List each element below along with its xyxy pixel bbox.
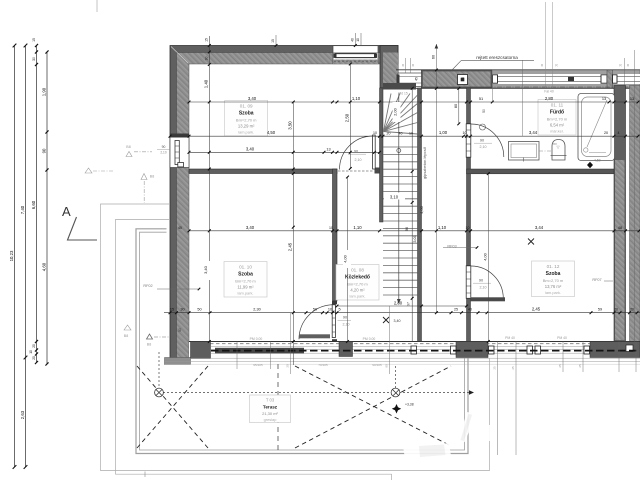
svg-text:01. 12: 01. 12: [547, 264, 560, 269]
svg-text:90: 90: [480, 139, 484, 143]
svg-text:gipszbeton lépcső: gipszbeton lépcső: [422, 146, 427, 179]
svg-text:2,63: 2,63: [20, 410, 25, 419]
svg-text:Pld 15: Pld 15: [398, 92, 408, 96]
svg-text:2,10: 2,10: [343, 322, 350, 326]
svg-text:Közlekedő: Közlekedő: [345, 275, 370, 281]
svg-text:2,80: 2,80: [394, 301, 403, 306]
svg-text:B8: B8: [553, 142, 557, 146]
svg-text:1,10: 1,10: [353, 225, 362, 230]
svg-text:2,10: 2,10: [160, 151, 166, 155]
svg-text:3,40: 3,40: [246, 147, 255, 152]
svg-text:lam.park.: lam.park.: [238, 291, 254, 296]
svg-text:10: 10: [328, 308, 332, 312]
svg-text:3,40: 3,40: [246, 225, 255, 230]
svg-text:13,29 m²: 13,29 m²: [238, 124, 255, 129]
svg-text:01. 08: 01. 08: [351, 268, 364, 273]
svg-text:25: 25: [558, 364, 562, 368]
svg-text:10: 10: [463, 131, 467, 135]
svg-text:Bm=2,70 m: Bm=2,70 m: [236, 117, 257, 122]
svg-text:90: 90: [405, 227, 409, 231]
svg-text:10: 10: [29, 350, 33, 354]
svg-text:4,20 m²: 4,20 m²: [350, 288, 365, 293]
svg-text:20: 20: [32, 356, 36, 360]
svg-text:40: 40: [399, 131, 403, 135]
svg-text:B8: B8: [147, 343, 151, 347]
svg-text:4: 4: [618, 131, 620, 135]
svg-text:13: 13: [326, 148, 330, 152]
svg-text:7,40: 7,40: [20, 205, 25, 214]
svg-text:6,60: 6,60: [31, 200, 36, 209]
svg-text:25: 25: [511, 366, 515, 370]
svg-text:már.ker.: már.ker.: [550, 129, 564, 134]
svg-text:3,44: 3,44: [529, 130, 538, 135]
svg-text:4,60: 4,60: [42, 262, 47, 271]
svg-text:2,10: 2,10: [480, 285, 487, 289]
svg-text:1,10: 1,10: [438, 225, 447, 230]
svg-text:10,23: 10,23: [9, 250, 14, 261]
svg-text:greslap: greslap: [264, 417, 277, 422]
svg-text:lam.park.: lam.park.: [545, 290, 561, 295]
svg-text:3,03: 3,03: [413, 236, 417, 243]
svg-text:01. 10: 01. 10: [239, 265, 252, 270]
svg-text:2,45: 2,45: [288, 242, 293, 251]
svg-text:4,00: 4,00: [343, 254, 348, 262]
svg-text:01. 09: 01. 09: [240, 104, 253, 109]
svg-text:40: 40: [351, 38, 355, 42]
svg-text:+3,38: +3,38: [405, 402, 414, 406]
svg-text:Bm=2,70 m: Bm=2,70 m: [235, 278, 256, 283]
svg-text:59: 59: [598, 308, 602, 312]
svg-text:1,90: 1,90: [42, 87, 47, 96]
svg-text:90: 90: [354, 150, 358, 154]
svg-text:2,10: 2,10: [480, 145, 487, 149]
svg-text:6,54 m²: 6,54 m²: [550, 123, 565, 128]
svg-text:2,00: 2,00: [394, 108, 398, 115]
svg-text:1,00: 1,00: [439, 130, 448, 135]
svg-text:45: 45: [415, 77, 419, 81]
svg-text:4,50: 4,50: [594, 158, 601, 162]
svg-text:90: 90: [384, 364, 388, 368]
svg-text:20: 20: [630, 308, 634, 312]
svg-text:25: 25: [493, 366, 497, 370]
svg-text:30: 30: [32, 57, 36, 61]
svg-text:60: 60: [431, 55, 435, 59]
svg-text:PM 40: PM 40: [557, 336, 567, 340]
svg-text:2,30: 2,30: [253, 308, 260, 312]
svg-text:Terasz: Terasz: [263, 405, 278, 410]
svg-text:50: 50: [178, 328, 182, 332]
svg-text:4,50: 4,50: [267, 130, 276, 135]
svg-text:A: A: [62, 204, 71, 219]
svg-text:21,30 m²: 21,30 m²: [262, 411, 278, 416]
svg-text:01. 11: 01. 11: [551, 103, 564, 108]
svg-text:PM 40: PM 40: [505, 336, 515, 340]
svg-text:RF03: RF03: [447, 245, 456, 249]
svg-text:48: 48: [618, 226, 622, 230]
svg-text:13: 13: [602, 96, 606, 101]
svg-text:RF07: RF07: [592, 278, 601, 282]
svg-text:PM 0.00: PM 0.00: [250, 337, 263, 341]
svg-text:25: 25: [578, 364, 582, 368]
svg-text:Fal 40: Fal 40: [544, 90, 554, 94]
svg-text:Bm=2,70 m: Bm=2,70 m: [347, 281, 368, 286]
svg-text:90: 90: [343, 316, 347, 320]
svg-text:30: 30: [180, 308, 184, 312]
svg-text:20: 20: [32, 344, 36, 348]
svg-text:B8: B8: [150, 175, 154, 179]
svg-text:4,00: 4,00: [483, 253, 487, 260]
svg-text:2,50: 2,50: [345, 113, 350, 122]
svg-text:20: 20: [387, 131, 391, 135]
svg-text:40: 40: [468, 308, 472, 312]
svg-text:50: 50: [313, 308, 317, 312]
svg-text:3,40: 3,40: [248, 96, 257, 101]
svg-text:15: 15: [271, 39, 275, 43]
svg-text:Szoba: Szoba: [239, 111, 254, 117]
svg-text:3,10: 3,10: [390, 194, 399, 199]
svg-text:15: 15: [32, 38, 36, 42]
svg-text:3,40: 3,40: [394, 319, 401, 323]
svg-text:4,00: 4,00: [420, 206, 424, 213]
svg-text:10: 10: [329, 226, 333, 230]
svg-text:30: 30: [205, 57, 209, 61]
svg-text:Szoba: Szoba: [238, 272, 253, 278]
svg-text:97: 97: [407, 302, 411, 306]
svg-text:2,80: 2,80: [545, 96, 554, 101]
svg-text:PM 0.00: PM 0.00: [363, 337, 376, 341]
svg-text:2,10: 2,10: [355, 158, 362, 162]
svg-text:RF02: RF02: [143, 284, 152, 288]
svg-text:50: 50: [482, 109, 486, 113]
svg-text:95/105: 95/105: [253, 363, 263, 367]
svg-text:90: 90: [479, 279, 483, 283]
svg-text:1,40: 1,40: [204, 79, 209, 88]
svg-text:3,40: 3,40: [203, 265, 208, 274]
svg-text:Szoba: Szoba: [546, 271, 561, 277]
svg-text:80: 80: [454, 104, 458, 108]
svg-text:Fürdő: Fürdő: [550, 110, 564, 116]
svg-text:50: 50: [197, 308, 201, 312]
svg-text:10: 10: [356, 38, 360, 42]
svg-text:10: 10: [466, 226, 470, 230]
svg-text:20: 20: [285, 364, 289, 368]
svg-text:10: 10: [373, 131, 377, 135]
svg-text:lam.park.: lam.park.: [350, 294, 366, 299]
svg-text:15: 15: [170, 308, 174, 312]
svg-text:5: 5: [338, 308, 340, 312]
svg-text:90: 90: [42, 148, 47, 153]
svg-text:rejtett ereszcsatorna: rejtett ereszcsatorna: [476, 55, 518, 60]
svg-text:lam.park.: lam.park.: [238, 130, 254, 135]
svg-text:Bm=2,70 m: Bm=2,70 m: [543, 278, 564, 283]
svg-text:2,45: 2,45: [532, 307, 541, 312]
svg-text:90: 90: [162, 145, 166, 149]
svg-text:25: 25: [454, 308, 458, 312]
svg-text:13: 13: [630, 96, 634, 101]
svg-text:70/105: 70/105: [318, 363, 328, 367]
svg-text:13,76 m²: 13,76 m²: [545, 284, 562, 289]
svg-text:T 03: T 03: [266, 398, 275, 403]
svg-text:11,99 m²: 11,99 m²: [237, 285, 254, 290]
svg-text:3,44: 3,44: [535, 225, 544, 230]
svg-text:1,10: 1,10: [352, 96, 361, 101]
svg-text:51: 51: [479, 96, 483, 101]
svg-text:20: 20: [604, 131, 608, 135]
svg-text:Bm=2,70 m: Bm=2,70 m: [547, 116, 568, 121]
svg-text:3,50: 3,50: [288, 121, 293, 130]
svg-text:20: 20: [614, 308, 618, 312]
svg-text:45: 45: [178, 226, 182, 230]
svg-text:B8: B8: [126, 145, 130, 149]
svg-text:15: 15: [205, 38, 209, 42]
svg-text:45: 45: [461, 77, 465, 81]
svg-text:90/105: 90/105: [372, 363, 382, 367]
svg-text:B8: B8: [124, 334, 128, 338]
